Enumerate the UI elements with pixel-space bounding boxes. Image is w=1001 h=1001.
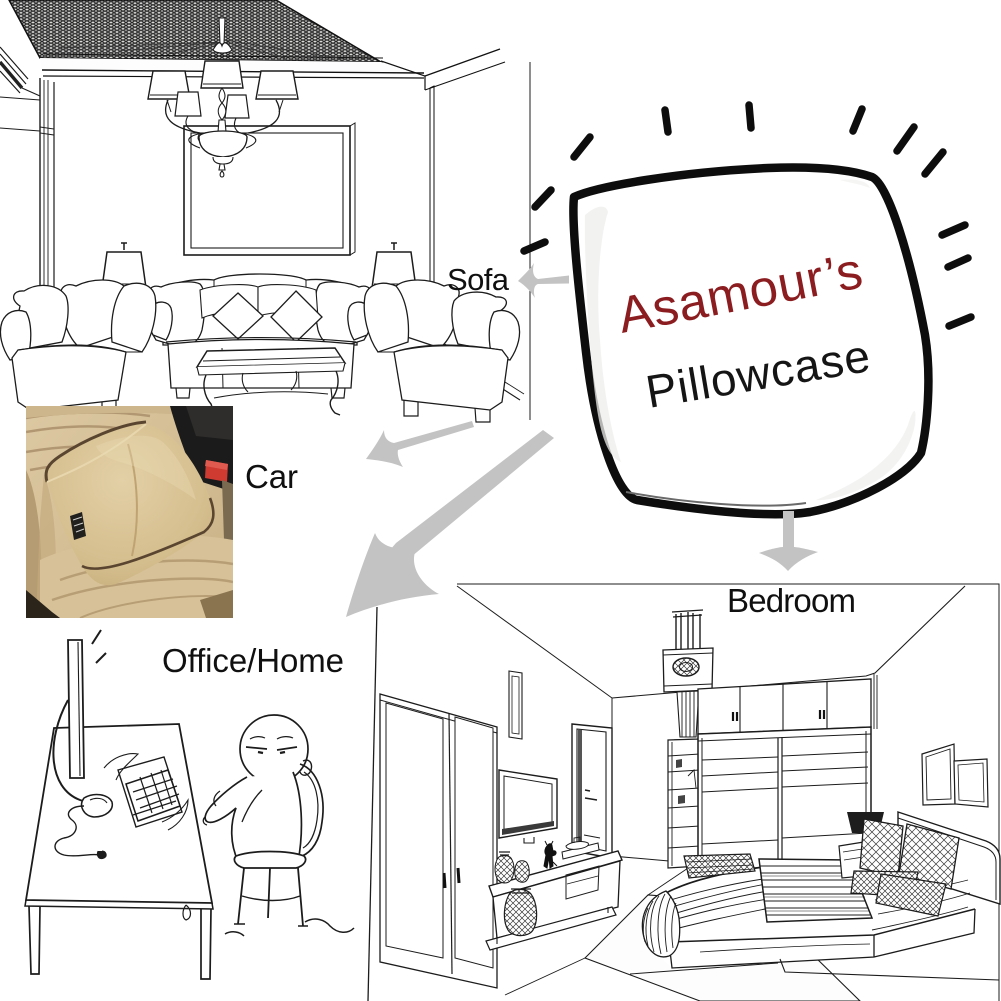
svg-text:Bedroom: Bedroom: [727, 582, 856, 619]
svg-text:Car: Car: [245, 458, 298, 495]
svg-text:Sofa: Sofa: [447, 262, 510, 297]
svg-text:Office/Home: Office/Home: [162, 642, 344, 679]
